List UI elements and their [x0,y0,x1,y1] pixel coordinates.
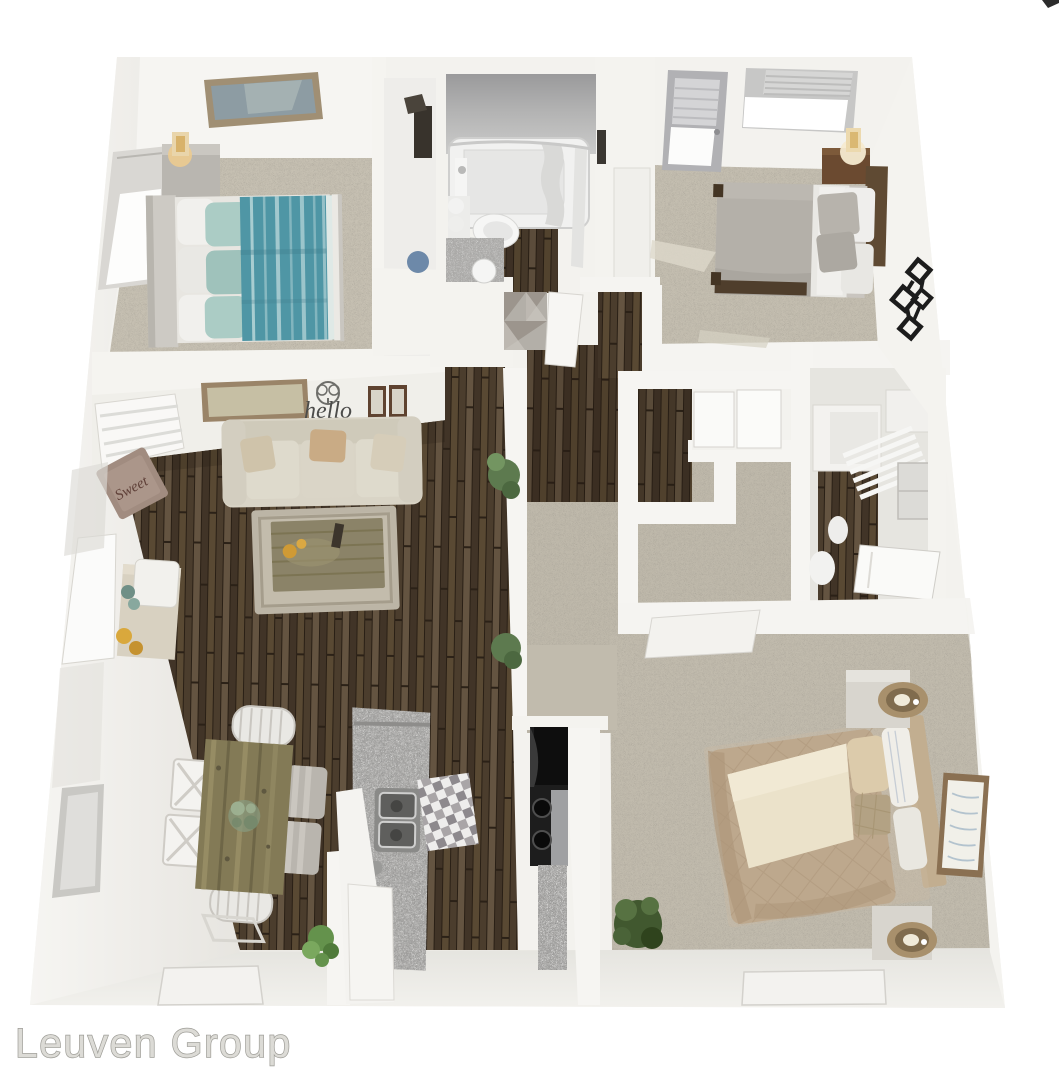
svg-text:Leuven Group: Leuven Group [15,1020,292,1066]
